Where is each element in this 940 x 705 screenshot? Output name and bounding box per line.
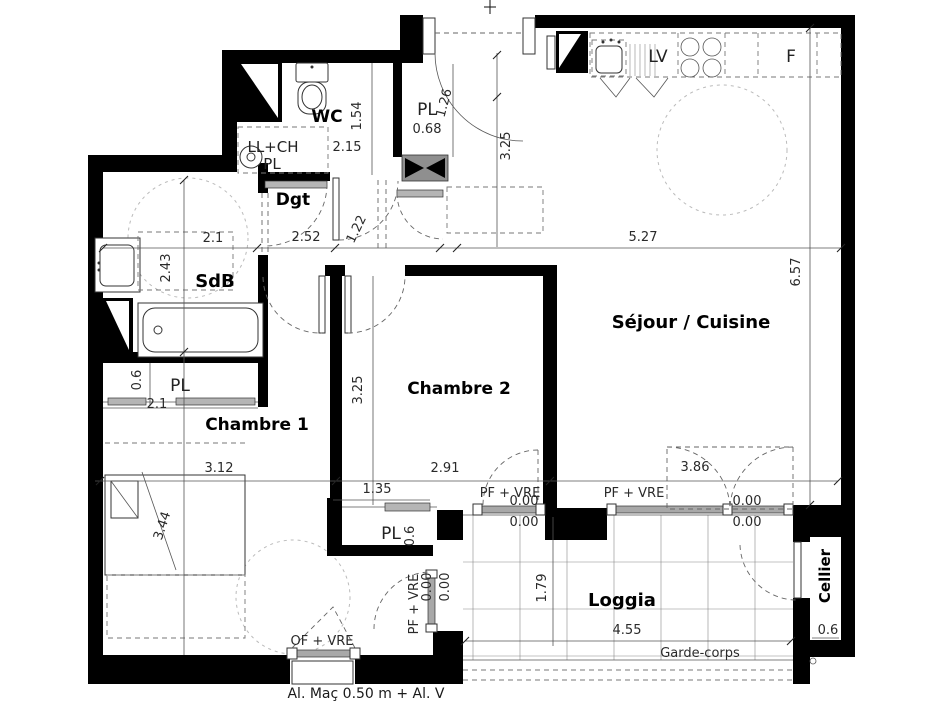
label-dishwasher: LV [648,47,668,67]
dim-loggia-depth: 1.79 [535,574,550,603]
dgt-sejour-door [333,178,398,240]
label-fridge: F [786,47,796,67]
room-label-wc: WC [311,107,342,127]
threshold-alcove-2: 0.00 [438,573,453,602]
threshold-w2-bottom: 0.00 [733,515,762,530]
dim-pl1-width: 2.1 [147,397,168,412]
dim-dgt-depth: 1.22 [344,213,370,246]
room-label-sdb: SdB [195,271,235,292]
dim-sdb-depth: 2.43 [159,254,174,283]
duct-wc [237,60,282,122]
dim-chambre1-width: 3.12 [205,461,234,476]
wardrobe-zone [107,575,245,638]
chambre2-door [345,276,405,333]
cellier-pipe [810,658,816,664]
floor-plan-svg: WC Dgt SdB Chambre 1 Chambre 2 Séjour / … [0,0,940,705]
dim-chambre2-width: 2.91 [431,461,460,476]
dim-dgt-width: 2.52 [292,230,321,245]
room-label-sejour: Séjour / Cuisine [612,312,771,333]
threshold-w2-top: 0.00 [733,494,762,509]
dim-pl2-width: 1.35 [363,482,392,497]
closet-chambre2-slider [342,503,437,511]
label-al-mac: Al. Maç 0.50 m + Al. V [287,686,444,702]
duct-kitchen [547,31,588,73]
dim-sejour-width: 5.27 [629,230,658,245]
room-label-loggia: Loggia [588,590,656,611]
bathtub [138,303,263,357]
room-label-dgt: Dgt [276,190,310,210]
dim-entry-depth: 3.25 [499,132,514,161]
label-window2-pfvre: PF + VRE [604,486,665,501]
kitchen-hob [681,38,721,77]
dim-pl1-depth: 0.6 [130,370,145,391]
threshold-w1-top: 0.00 [510,494,539,509]
label-garde-corps: Garde-corps [660,646,740,661]
label-ll-ch: LL+CH [247,138,298,156]
kitchen-counter [590,33,841,97]
closet-chambre1-sliders [103,398,258,405]
garde-corps-railing [463,670,793,680]
chambre1-door [263,276,325,333]
room-label-cellier: Cellier [816,548,834,603]
dim-chambre2-depth: 3.25 [351,376,366,405]
kitchen-sink [592,39,626,77]
label-ll-ch-pl: PL [263,155,281,173]
entry-cabinet [447,187,543,233]
dim-sejour-depth: 6.57 [789,258,804,287]
dim-cellier-width: 0.6 [818,623,839,638]
cellier-door [740,542,801,600]
dim-bay-width: 3.86 [681,460,710,475]
threshold-w1-bottom: 0.00 [510,515,539,530]
dim-loggia-width: 4.55 [613,623,642,638]
dim-pl-entry: 0.68 [413,122,442,137]
label-pl-chambre2: PL [381,524,401,544]
room-label-chambre1: Chambre 1 [205,415,309,435]
sdb-sink [95,238,140,292]
duct-sdb [103,298,133,355]
duct-entry-xbox [402,155,448,181]
dim-wc-depth: 1.54 [350,102,365,131]
entry-door [423,0,535,141]
label-pl-chambre1: PL [170,376,190,396]
dim-entry-closet-depth: 1.26 [434,87,456,119]
label-window-ofvre: OF + VRE [290,634,353,649]
dim-pl2-depth: 0.6 [403,526,418,547]
floor-plan: WC Dgt SdB Chambre 1 Chambre 2 Séjour / … [0,0,940,705]
threshold-alcove-1: 0.00 [420,573,435,602]
room-label-chambre2: Chambre 2 [407,379,511,399]
sdb-sliding-door [262,193,268,255]
dim-wc-width: 2.15 [333,140,362,155]
counter-edge-mark [600,78,668,97]
dim-sdb-width: 2.1 [203,231,224,246]
